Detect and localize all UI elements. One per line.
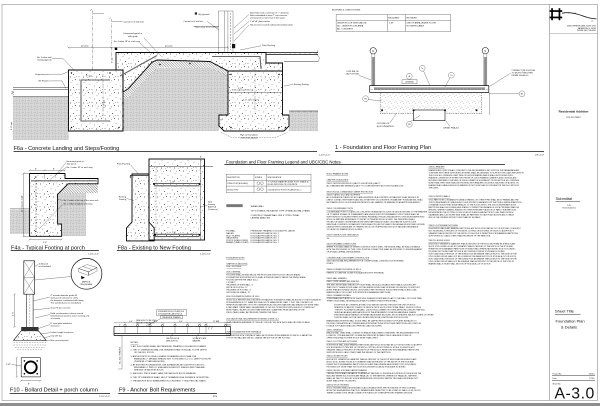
- svg-text:1-1/2"=1'-0": 1-1/2"=1'-0": [88, 253, 99, 255]
- svg-text:8": 8": [200, 157, 202, 159]
- svg-text:2308.10 WOOD TRUSSES: 2308.10 WOOD TRUSSES: [327, 384, 350, 386]
- svg-text:DOUBLE TOP PLATES SHALL BE OFF: DOUBLE TOP PLATES SHALL BE OFFSET AT LEA…: [327, 324, 383, 327]
- svg-text:1/8"=1'-0": 1/8"=1'-0": [535, 155, 544, 157]
- svg-text:No. 4 rebar at the top of the: No. 4 rebar at the top of the stem wall: [64, 199, 99, 202]
- svg-text:6'-0": 6'-0": [154, 321, 158, 323]
- svg-text:PLATE WASHERS A MINIMUM OF 2 I: PLATE WASHERS A MINIMUM OF 2 INCH BY 2 I…: [226, 321, 310, 324]
- svg-text:Foundation and Floor Framing L: Foundation and Floor Framing Legend and …: [226, 159, 341, 164]
- svg-text:8": 8": [221, 120, 223, 122]
- svg-text:1203.0: 1203.0: [589, 373, 595, 375]
- svg-text:SUPPORTING NO LOADS OTHER THAN: SUPPORTING NO LOADS OTHER THAN THE WEIGH…: [327, 351, 392, 354]
- svg-text:BEAMS (UNBLOCKED): BEAMS (UNBLOCKED): [226, 241, 248, 244]
- svg-text:WOOD POST: WOOD POST: [227, 189, 239, 191]
- svg-text:DEVICES SHALL NOT BE USED UNLE: DEVICES SHALL NOT BE USED UNLESS SPECIFI…: [334, 316, 408, 319]
- svg-text:3'-6": 3'-6": [12, 312, 14, 316]
- svg-text:(SEE NOTE 3): (SEE NOTE 3): [166, 341, 178, 343]
- svg-text:1806.3 ADDITIONAL REQUIREMENTS: 1806.3 ADDITIONAL REQUIREMENTS IN SEISMI…: [226, 317, 279, 320]
- svg-text:THE LINTEL.: THE LINTEL.: [429, 187, 440, 189]
- svg-text:MORE THAN 4 FEET ON CENTER.: MORE THAN 4 FEET ON CENTER.: [327, 380, 357, 383]
- svg-text:Hot pressure treated redwood f: Hot pressure treated redwood foundation …: [250, 24, 294, 27]
- svg-text:Existing Footing: Existing Footing: [294, 83, 310, 86]
- svg-text:4'-0" min: 4'-0" min: [104, 99, 106, 108]
- svg-text:2308.9 CEILING JOIST AND RAFTE: 2308.9 CEILING JOIST AND RAFTER FRAMING: [327, 369, 368, 372]
- svg-text:Foundation Plan: Foundation Plan: [556, 319, 585, 324]
- svg-text:Cannot tie of slab wall: Cannot tie of slab wall: [123, 20, 144, 23]
- svg-text:DETAIL F6a/A-3.0: DETAIL F6a/A-3.0: [512, 74, 530, 77]
- svg-text:BOLT.: BOLT.: [226, 324, 231, 326]
- svg-text:Patio Flashing: Patio Flashing: [262, 44, 276, 47]
- svg-text:Patio Flashing: Patio Flashing: [117, 163, 131, 166]
- svg-text:2308.2.4 HEADERS: 2308.2.4 HEADERS: [429, 166, 446, 169]
- svg-text:DEPTH BELOW GRADE - 12": DEPTH BELOW GRADE - 12": [226, 291, 250, 294]
- svg-text:(7a) 5/8" dia: (7a) 5/8" dia: [51, 336, 63, 338]
- svg-text:Compacted gravel at: Compacted gravel at: [123, 32, 143, 35]
- svg-text:1. ALL SILL PLATES SHALL BE P: 1. ALL SILL PLATES SHALL BE PRESSURE TRE…: [131, 345, 207, 348]
- svg-text:2308.1.4 CUTTING AND NOTCHING: 2308.1.4 CUTTING AND NOTCHING: [327, 340, 358, 343]
- svg-text:6'-0": 6'-0": [129, 321, 133, 323]
- svg-text:7'-0": 7'-0": [172, 232, 176, 234]
- svg-text:Residential Addition: Residential Addition: [559, 110, 589, 114]
- svg-text:footing (typical): footing (typical): [37, 59, 51, 62]
- svg-text:No. 4 rebar at bottom of footi: No. 4 rebar at bottom of footing: [64, 203, 94, 206]
- svg-text:5. EACH SILL PIECE SHALL HAVE: 5. EACH SILL PIECE SHALL HAVE TWO ANCHOR…: [131, 372, 197, 375]
- svg-text:No. 4 rebar 18" oc each way: No. 4 rebar 18" oc each way: [114, 40, 141, 43]
- svg-text:OF THE SILL STOCK.: OF THE SILL STOCK.: [134, 352, 155, 354]
- svg-text:accurately: accurately: [51, 317, 61, 320]
- svg-text:per plan: per plan: [81, 45, 89, 48]
- svg-text:UNDER FLOOR VENTILATION:: UNDER FLOOR VENTILATION:: [337, 22, 367, 25]
- svg-text:2 SF: 2 SF: [389, 23, 394, 25]
- svg-text:a r c h i t e c t s: a r c h i t e c t s: [564, 12, 576, 15]
- svg-text:1'-6": 1'-6": [43, 242, 47, 244]
- svg-text:NTS: NTS: [213, 396, 218, 398]
- svg-text:1"x4"x8" plate washer: 1"x4"x8" plate washer: [250, 20, 270, 23]
- svg-text:Submittal: Submittal: [556, 196, 573, 201]
- svg-text:4"x4"(H) WOOD POST, DF LARCH,: 4"x4"(H) WOOD POST, DF LARCH, NO. 2: [268, 188, 302, 191]
- svg-text:NOTES:: NOTES:: [131, 342, 139, 344]
- svg-text:Sheet Title: Sheet Title: [555, 309, 575, 314]
- svg-text:slab grade: slab grade: [128, 35, 139, 38]
- svg-text:CONSTRUCT SHEAR WALL PER 8" ST: CONSTRUCT SHEAR WALL PER 8" STRUCTURAL: [251, 214, 301, 217]
- svg-text:SHEAR WALL: SHEAR WALL: [251, 205, 265, 208]
- svg-text:Permit Submittal: Permit Submittal: [562, 207, 576, 210]
- svg-text:BEARING WALLS OR ANY WALL SECT: BEARING WALLS OR ANY WALL SECTION OF STU…: [429, 262, 492, 265]
- svg-text:6": 6": [35, 168, 37, 170]
- svg-text:Date: Date: [553, 377, 557, 380]
- svg-text:WASHER: WASHER: [193, 340, 202, 343]
- svg-text:as scheduled: as scheduled: [39, 266, 52, 268]
- svg-text:Fellow, height to process: Fellow, height to process: [51, 331, 74, 334]
- svg-text:slab porch: slab porch: [67, 163, 77, 166]
- svg-text:DESCRIPTION: DESCRIPTION: [227, 177, 240, 179]
- svg-text:42" min pier depth: 42" min pier depth: [20, 194, 23, 212]
- svg-text:(N) DINING & LIVING ROOMS: (N) DINING & LIVING ROOMS: [332, 10, 361, 12]
- svg-text:BEARING WALLS OR 10 FEET FOR I: BEARING WALLS OR 10 FEET FOR INTERIOR NO…: [327, 291, 392, 294]
- svg-text:The specified prior to install: The specified prior to installation): [51, 302, 82, 305]
- svg-text:1806.7 FOUNDATIONS WITH STEPWA: 1806.7 FOUNDATIONS WITH STEPWALLS: [226, 330, 261, 333]
- svg-text:NOT APPLICABLE: NOT APPLICABLE: [407, 25, 425, 28]
- svg-text:2308.2.8 PIPES IN WALLS: 2308.2.8 PIPES IN WALLS: [429, 195, 451, 198]
- svg-text:DETAIL F8/A-3.0: DETAIL F8/A-3.0: [443, 126, 459, 129]
- svg-text:ALL STANDARD AND MINIMUM QUALI: ALL STANDARD AND MINIMUM QUALITY TO CONF…: [327, 184, 405, 187]
- svg-text:PROVIDED: PROVIDED: [406, 18, 417, 20]
- svg-text:CONVENTIONAL LIGHT-FRAME CONST: CONVENTIONAL LIGHT-FRAME CONSTRUCTION: [327, 256, 370, 259]
- svg-text:A-3.0: A-3.0: [555, 386, 595, 403]
- svg-text:(E) FOUNDATION: (E) FOUNDATION: [377, 125, 394, 128]
- svg-text:SIDE OF THE OPENING WITH NOT L: SIDE OF THE OPENING WITH NOT LESS THAN S…: [429, 216, 482, 219]
- svg-text:and spaced no more than 6 feet: and spaced no more than 6 feet apart: [250, 17, 285, 20]
- svg-text:BE TREATED WOOD OR FOUNDATION: BE TREATED WOOD OR FOUNDATION REDWOOD, A…: [327, 201, 422, 204]
- svg-text:CBSQ44 BASE: CBSQ44 BASE: [80, 283, 93, 286]
- svg-text:12" MIN: 12" MIN: [213, 321, 220, 323]
- svg-text:2308.1.5 BORED HOLES: 2308.1.5 BORED HOLES: [327, 356, 349, 358]
- svg-text:1234 W STREET: 1234 W STREET: [566, 117, 581, 119]
- svg-text:per plan: per plan: [165, 45, 173, 48]
- svg-text:TOP OF THE WALL AND ONE NO. 4: TOP OF THE WALL AND ONE NO. 4 BAR AT THE…: [226, 336, 291, 339]
- svg-text:CHAPTER 23 (BUILDING): CHAPTER 23 (BUILDING): [327, 178, 349, 181]
- svg-text:WOOD FRAMING NOTES: WOOD FRAMING NOTES: [327, 172, 349, 175]
- svg-text:2'-0" sqr x footing: 2'-0" sqr x footing: [243, 99, 260, 102]
- svg-text:with old foundation: with old foundation: [240, 136, 258, 139]
- svg-text:Footing: Footing: [119, 198, 127, 201]
- svg-text:OFFSET FROM EACH OTHER BY NOT: OFFSET FROM EACH OTHER BY NOT MORE THAN …: [327, 336, 379, 339]
- svg-text:ALL CONCRETE: ALL CONCRETE: [337, 28, 353, 31]
- svg-text:2308.6 FOUNDATION PLATES OR SI: 2308.6 FOUNDATION PLATES OR SILLS: [327, 268, 362, 271]
- svg-text:USE OF AREA UNDER FLOOR: USE OF AREA UNDER FLOOR: [407, 22, 437, 25]
- svg-text:Max concrete porch: Max concrete porch: [51, 339, 70, 342]
- svg-text:SPACING OF ANCHOR BOLTS.: SPACING OF ANCHOR BOLTS.: [134, 369, 164, 372]
- svg-text:steel post: steel post: [51, 325, 60, 328]
- svg-text:LEGEND: LEGEND: [405, 82, 414, 84]
- svg-text:DOUGLAS FIR LARCH, NO. 1: DOUGLAS FIR LARCH, NO. 1: [251, 241, 280, 244]
- svg-text:UPLIFT AND LATERAL DISPLACEMEN: UPLIFT AND LATERAL DISPLACEMENT.: [327, 250, 362, 253]
- svg-text:High sal foundation: High sal foundation: [240, 134, 259, 137]
- svg-text:1-1/2"=1'-0": 1-1/2"=1'-0": [319, 155, 330, 157]
- svg-text:(E) plywood: (E) plywood: [198, 14, 210, 16]
- svg-text:FOUNDATION NOTES: FOUNDATION NOTES: [226, 256, 245, 259]
- svg-text:2004 - FOOTINGS: 2004 - FOOTINGS: [226, 266, 241, 268]
- svg-text:THREE STUDS SHALL BE INSTALLED: THREE STUDS SHALL BE INSTALLED AT EACH C…: [327, 300, 399, 303]
- svg-text:SILL BOLT SPACING: SILL BOLT SPACING: [119, 346, 122, 364]
- svg-text:ZONE 4: ZONE 4: [327, 263, 334, 265]
- svg-text:7. THE ANCHOR BOLT EMBEDMENT: 7. THE ANCHOR BOLT EMBEDMENT IN CONCRETE…: [131, 380, 207, 383]
- svg-text:FILLED WITH 2500 PSI CONCRETE: FILLED WITH 2500 PSI CONCRETE: [268, 184, 298, 186]
- svg-text:2308.1 WALL FRAMING: 2308.1 WALL FRAMING: [327, 277, 347, 280]
- svg-text:F6a - Concrete Landing and Ste: F6a - Concrete Landing and Steps/Footing: [14, 146, 120, 152]
- svg-text:1'-0": 1'-0": [170, 181, 174, 183]
- svg-text:2308.1.2 FRAMING DETAILS: 2308.1.2 FRAMING DETAILS: [327, 294, 352, 297]
- svg-text:8": 8": [28, 383, 30, 385]
- svg-text:1 - Foundation and Floor Frami: 1 - Foundation and Floor Framing Plan: [335, 145, 431, 151]
- svg-text:Cannot tie of wall rim: Cannot tie of wall rim: [183, 20, 203, 23]
- svg-text:6'-0": 6'-0": [179, 321, 183, 323]
- svg-text:STEEL POST(BOLLARD): STEEL POST(BOLLARD): [227, 182, 248, 185]
- svg-text:LARGER THAN BOLT): LARGER THAN BOLT): [136, 322, 155, 325]
- svg-text:2308.5 COLUMNS AND POSTS: 2308.5 COLUMNS AND POSTS: [327, 207, 354, 210]
- svg-text:No. 4 rebar 18" oc each way: No. 4 rebar 18" oc each way: [67, 166, 94, 169]
- svg-text:Expansion joint: Expansion joint: [35, 73, 50, 76]
- svg-text:PRESSURE TREATED: PRESSURE TREATED: [162, 316, 181, 319]
- svg-text:F10 - Bollard Detail + porch c: F10 - Bollard Detail + porch column: [10, 388, 98, 394]
- svg-text:SECTION 2304.1 GRADE AND LUMBE: SECTION 2304.1 GRADE AND LUMBER PROTECTI…: [327, 190, 374, 193]
- svg-text:PROVIDED NOT MORE THAN TWO SUC: PROVIDED NOT MORE THAN TWO SUCH SUCCESSI…: [327, 365, 407, 368]
- svg-text:REQUIRED: REQUIRED: [388, 18, 399, 20]
- svg-text:1806.1 GENERAL: 1806.1 GENERAL: [226, 270, 241, 273]
- svg-text:1'-0": 1'-0": [238, 88, 242, 90]
- svg-text:& Details: & Details: [561, 325, 577, 330]
- svg-text:(E) Planters: (E) Planters: [39, 80, 50, 83]
- svg-text:8": 8": [53, 168, 55, 170]
- svg-text:TIMBER CONNECTORS, METAL CONNE: TIMBER CONNECTORS, METAL CONNECTOR PLATE…: [327, 391, 414, 394]
- svg-text:PIECE. (TABLE) SHALL BE PRESSU: PIECE. (TABLE) SHALL BE PRESSURE TREATED…: [226, 311, 278, 314]
- svg-text:1806.2 FOUNDATION PLATES OR SI: 1806.2 FOUNDATION PLATES OR SILLS: [226, 295, 260, 298]
- svg-text:TO DECAY OR TREATED WOOD IS US: TO DECAY OR TREATED WOOD IS USED.: [327, 228, 364, 231]
- svg-text:4" min: 4" min: [86, 76, 93, 78]
- svg-text:SPECIFICATION: SPECIFICATION: [268, 176, 282, 179]
- svg-text:N: N: [372, 50, 374, 53]
- svg-text:2308.1 ADDITIONAL REQUIREMENTS: 2308.1 ADDITIONAL REQUIREMENTS FOR CONVE…: [327, 259, 405, 262]
- svg-text:2308.7 UNDER-FLOOR VENTILATION: 2308.7 UNDER-FLOOR VENTILATION: [327, 234, 360, 237]
- svg-text:N: N: [484, 50, 486, 53]
- svg-text:1-1/2": 1-1/2": [6, 364, 12, 366]
- svg-text:2308.1.1 SIZE, HEIGHT AND SPAC: 2308.1.1 SIZE, HEIGHT AND SPACING: [327, 280, 360, 283]
- svg-text:2308.2.9 CUTTING AND NOTCHING: 2308.2.9 CUTTING AND NOTCHING: [429, 224, 459, 227]
- svg-text:PHONE (941) 538-6941: PHONE (941) 538-6941: [577, 30, 596, 32]
- svg-text:SUPPORTING NO LOADS OTHER THAN: SUPPORTING NO LOADS OTHER THAN THE WEIGH…: [429, 234, 492, 237]
- svg-text:"W" IS SYMBOL INDICATING TYPE: "W" IS SYMBOL INDICATING TYPE OF BRACED …: [251, 210, 311, 213]
- svg-text:2308.1.3 BRACING: 2308.1.3 BRACING: [327, 328, 343, 331]
- svg-text:Project No: Project No: [553, 372, 562, 375]
- svg-text:2304 POST-BEAM CONNECTIONS: 2304 POST-BEAM CONNECTIONS: [327, 242, 357, 245]
- svg-text:LATERAL ANALYSIS: LATERAL ANALYSIS: [251, 217, 271, 220]
- svg-text:(PLATE/SILL PLATE ANCHORS).: (PLATE/SILL PLATE ANCHORS).: [134, 360, 165, 363]
- svg-text:6" min: 6" min: [112, 56, 114, 63]
- svg-text:1-1/2"=1'-0": 1-1/2"=1'-0": [99, 396, 110, 398]
- svg-text:(Continue): (Continue): [208, 208, 218, 211]
- svg-text:DOUGLAS FIR LARCH NO.2): DOUGLAS FIR LARCH NO.2): [158, 313, 182, 316]
- svg-text:4'-0" min: 4'-0" min: [11, 121, 13, 130]
- svg-text:REFERS TO CHAPTER 18 (SEE FOUN: REFERS TO CHAPTER 18 (SEE FOUNDATION NOT…: [327, 271, 385, 274]
- svg-text:Grout fill per concrete: Grout fill per concrete: [51, 307, 72, 310]
- svg-text:F9 - Anchor Bolt Requirements: F9 - Anchor Bolt Requirements: [119, 388, 196, 394]
- svg-text:HEADER SHALL HAVE A LENGTH OF: HEADER SHALL HAVE A LENGTH OF BEARING OF…: [429, 184, 520, 187]
- svg-text:NO - UNDER FLOOR AREA: NO - UNDER FLOOR AREA: [337, 25, 364, 28]
- svg-text:1-1/2"=1'-0": 1-1/2"=1'-0": [200, 253, 211, 255]
- svg-text:OUTLINE OF: OUTLINE OF: [377, 123, 390, 125]
- svg-text:2308.2.10 BORED HOLES: 2308.2.10 BORED HOLES: [429, 240, 451, 242]
- svg-text:SYMBOL: SYMBOL: [255, 177, 263, 179]
- svg-text:(E) FOOTING: (E) FOOTING: [346, 74, 359, 76]
- svg-text:6. THE "W" DIMENSION SHALL BE: 6. THE "W" DIMENSION SHALL BE 1/2" MINIM…: [131, 376, 210, 379]
- svg-text:1/7/16: 1/7/16: [589, 378, 594, 380]
